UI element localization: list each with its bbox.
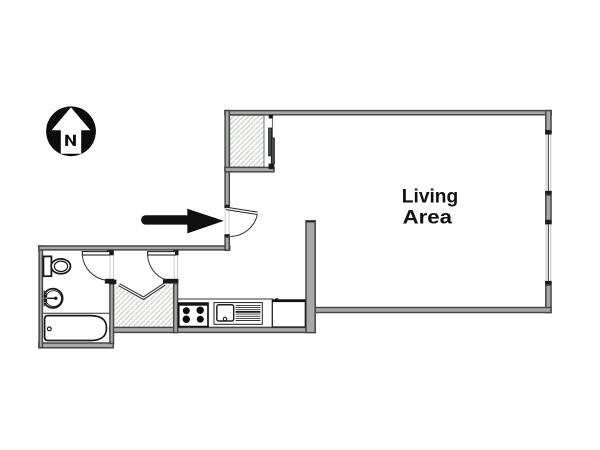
svg-text:Living: Living — [402, 186, 458, 207]
svg-text:Area: Area — [403, 207, 453, 228]
